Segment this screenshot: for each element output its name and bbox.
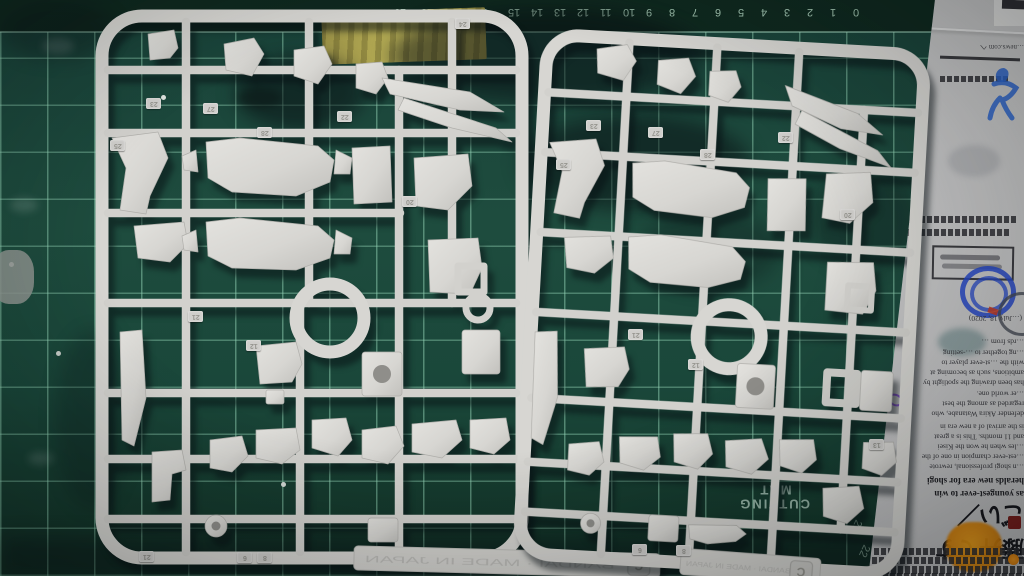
part-number-tag: 13 [869, 439, 884, 450]
part-number-tag: 20 [840, 209, 855, 220]
part-number-tag: 28 [700, 149, 715, 160]
part-number-tag: 28 [257, 127, 272, 138]
part-number-tag: 25 [110, 140, 125, 151]
part-number-tag: 22 [337, 111, 352, 122]
part-number-tag: 8 [257, 552, 272, 563]
part-number-tag: 8 [676, 545, 691, 556]
right-runner: BANDAI · MADE IN JAPAN C [518, 34, 925, 576]
part-number-tag: 21 [628, 329, 643, 340]
part-number-tag: 12 [688, 359, 703, 370]
runner-sprues: BANDAI · MADE IN JAPAN C [0, 0, 1024, 576]
part-number-tag: 6 [237, 552, 252, 563]
part-number-tag: 20 [402, 196, 417, 207]
runner-letter-right: C [796, 565, 806, 576]
part-number-tag: 24 [455, 18, 470, 29]
left-runner: BANDAI · MADE IN JAPAN C [102, 16, 660, 576]
photo-scene: 012345678910111213141516171819 20212223 … [0, 0, 1024, 576]
part-number-tag: 23 [146, 98, 161, 109]
part-number-tag: 6 [632, 544, 647, 555]
part-number-tag: 21 [188, 311, 203, 322]
part-number-tag: 21 [139, 551, 154, 562]
part-number-tag: 23 [586, 120, 601, 131]
part-number-tag: 27 [203, 103, 218, 114]
right-runner-label-rail: BANDAI · MADE IN JAPAN C [680, 548, 822, 576]
part-number-tag: 27 [648, 127, 663, 138]
part-number-tag: 12 [246, 340, 261, 351]
part-number-tag: 25 [556, 159, 571, 170]
part-number-tag: 22 [778, 132, 793, 143]
